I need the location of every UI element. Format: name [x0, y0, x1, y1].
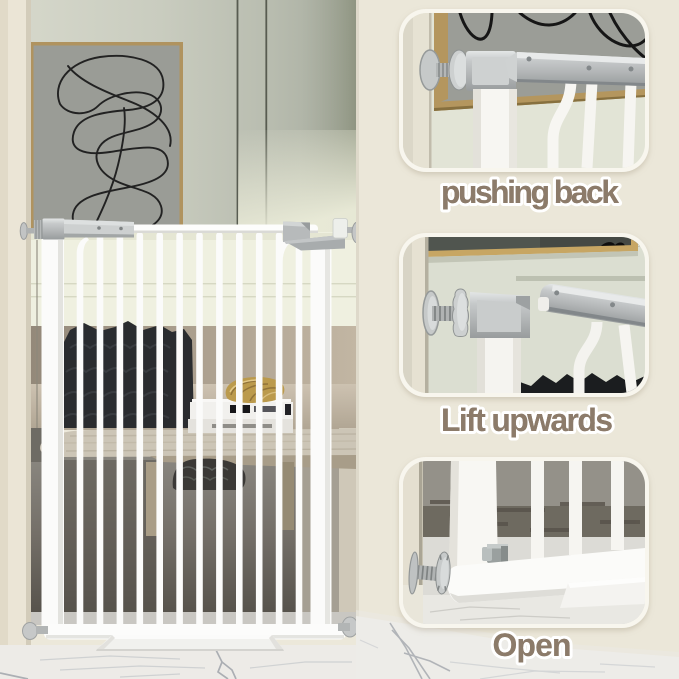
- svg-text:Open: Open: [493, 627, 572, 663]
- svg-text:Lift upwards: Lift upwards: [441, 402, 613, 438]
- svg-text:pushing back: pushing back: [441, 174, 619, 210]
